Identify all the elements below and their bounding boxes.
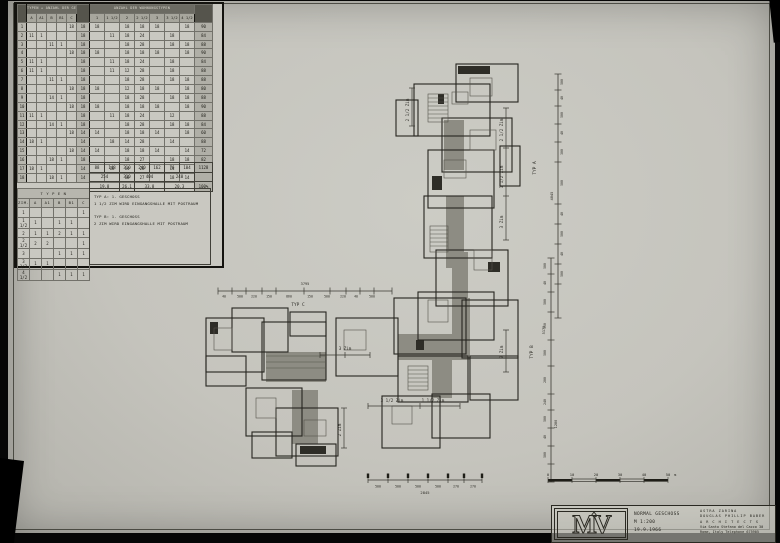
plan-label: 500 — [324, 294, 330, 298]
plan-label: 500 — [375, 485, 381, 489]
scale-bar-segment — [644, 479, 668, 482]
plan-label: 3 Zim — [339, 346, 352, 351]
plan-label: 40 — [642, 472, 647, 477]
plan-label: 220 — [251, 294, 257, 298]
plan-label: 150 — [266, 294, 272, 298]
logo-letters: MV — [572, 510, 612, 537]
plan-label: 500 — [543, 263, 547, 269]
plan-label: 40 — [560, 252, 564, 256]
plan-label: 500 — [543, 416, 547, 422]
scale-bar-segment — [427, 474, 429, 479]
plan-label: 500 — [369, 294, 375, 298]
floor-plan: 3795 TYP C TYP A 4845 TYP B 5175 1280 28… — [0, 0, 780, 543]
plan-label: 500 — [560, 112, 564, 118]
scale-bar-segment — [367, 474, 369, 479]
plan-label: 270 — [470, 485, 476, 489]
plan-label: 1 1/2 Zim — [422, 398, 445, 403]
drawing-info: NORMAL GESCHOSS M 1:200 19.9.1966 — [630, 506, 698, 542]
title-block: MV NORMAL GESCHOSS M 1:200 19.9.1966 AST… — [551, 505, 776, 543]
scale-bar-segment — [548, 479, 572, 482]
dim-bottom-total: 2845 — [420, 490, 429, 495]
plan-label: 500 — [560, 231, 564, 237]
scale-bar-segment — [407, 474, 409, 479]
dim-right-a-label: TYP A — [532, 161, 538, 175]
plan-label: 40 — [543, 435, 547, 439]
plan-label: 500 — [543, 299, 547, 305]
plan-label: 40 — [354, 294, 358, 298]
plan-label: 2 1/2 Zim — [499, 118, 504, 141]
plan-label: 240 — [543, 399, 547, 405]
plan-label: 40 — [222, 294, 226, 298]
plan-label: 500 — [560, 79, 564, 85]
plan-label: 500 — [560, 180, 564, 186]
architect-name-2: DOUGLAS PHILLIP BABER — [700, 514, 773, 519]
dim-right-b-label: TYP B — [529, 345, 535, 359]
scale-bar-segment — [596, 479, 620, 482]
plan-label: 500 — [237, 294, 243, 298]
plan-label: 350 — [543, 323, 547, 329]
mv-logo: MV — [554, 508, 628, 540]
plan-label: 2 Zim — [499, 345, 504, 358]
scale-bar-segment — [620, 479, 644, 482]
plan-label: 500 — [560, 271, 564, 277]
drawing-sheet: TYPEN + ANZAHL DER GESCHOSSEANZAHL DER W… — [8, 1, 775, 533]
dim-right-a-total: 4845 — [550, 192, 554, 201]
plan-label: 500 — [435, 485, 441, 489]
plan-label: 200 — [543, 377, 547, 383]
plan-label: 500 — [395, 485, 401, 489]
drawing-date: 19.9.1966 — [634, 527, 696, 535]
plan-label: 0 — [547, 472, 550, 477]
plan-label: 50 — [666, 472, 671, 477]
plan-label: m — [674, 472, 677, 477]
plan-label: 270 — [453, 485, 459, 489]
scale-bar-segment — [481, 474, 483, 479]
plan-label: 10 — [570, 472, 575, 477]
plan-label: 2 1/2 Zim — [405, 98, 410, 121]
architect-info: ASTRA ZARINA DOUGLAS PHILLIP BABER A R C… — [698, 506, 775, 542]
plan-label: 3 Zim — [499, 215, 504, 228]
dim-top-total: 3795 — [301, 282, 310, 286]
plan-label: 860 — [286, 294, 292, 298]
plan-label: 500 — [543, 350, 547, 356]
plan-outlines — [206, 64, 520, 466]
plan-label: 40 — [560, 212, 564, 216]
scale-bar-segment — [572, 479, 596, 482]
plan-label: 30 — [618, 472, 623, 477]
plan-label: 20 — [594, 472, 599, 477]
plan-label: 3 1/2 Zim — [381, 398, 404, 403]
plan-label: 500 — [415, 485, 421, 489]
plan-label: 1 1/2 Zim — [499, 165, 504, 188]
scale-bar-segment — [463, 474, 465, 479]
plan-label: 40 — [560, 96, 564, 100]
drawing-scale: M 1:200 — [634, 519, 696, 527]
dim-right-b-total-2: 1280 — [554, 420, 558, 429]
dim-top-label: TYP C — [291, 302, 305, 308]
plan-label: 300 — [560, 149, 564, 155]
plan-label: 220 — [340, 294, 346, 298]
drawing-title: NORMAL GESCHOSS — [634, 511, 696, 519]
scale-bar-segment — [387, 474, 389, 479]
plan-label: 500 — [543, 452, 547, 458]
scale-bar-segment — [447, 474, 449, 479]
architect-city-phone: Rome, Italy Telephone 675905 — [700, 530, 773, 535]
plan-label: 2 Zim — [337, 423, 342, 436]
scanned-drawing-photo: TYPEN + ANZAHL DER GESCHOSSEANZAHL DER W… — [0, 0, 780, 543]
plan-label: 150 — [307, 294, 313, 298]
plan-label: 40 — [560, 131, 564, 135]
plan-label: 40 — [543, 281, 547, 285]
plan-core-shading — [266, 120, 470, 444]
